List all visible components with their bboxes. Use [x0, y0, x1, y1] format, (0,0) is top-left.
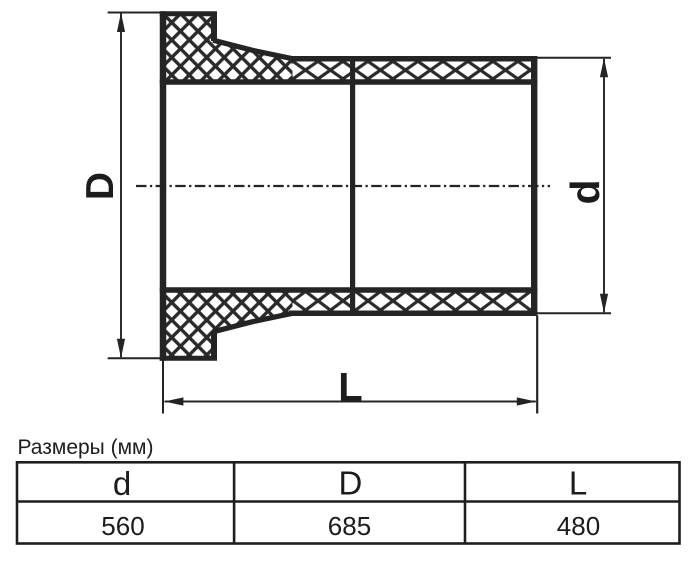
svg-text:d: d — [113, 465, 131, 502]
svg-text:Размеры (мм): Размеры (мм) — [18, 436, 154, 459]
svg-text:560: 560 — [101, 511, 144, 541]
svg-text:480: 480 — [557, 511, 600, 541]
svg-text:D: D — [79, 172, 122, 200]
svg-text:D: D — [338, 464, 362, 501]
svg-text:L: L — [338, 366, 362, 410]
svg-text:L: L — [569, 464, 587, 501]
svg-text:d: d — [562, 179, 608, 204]
svg-text:685: 685 — [328, 511, 371, 541]
